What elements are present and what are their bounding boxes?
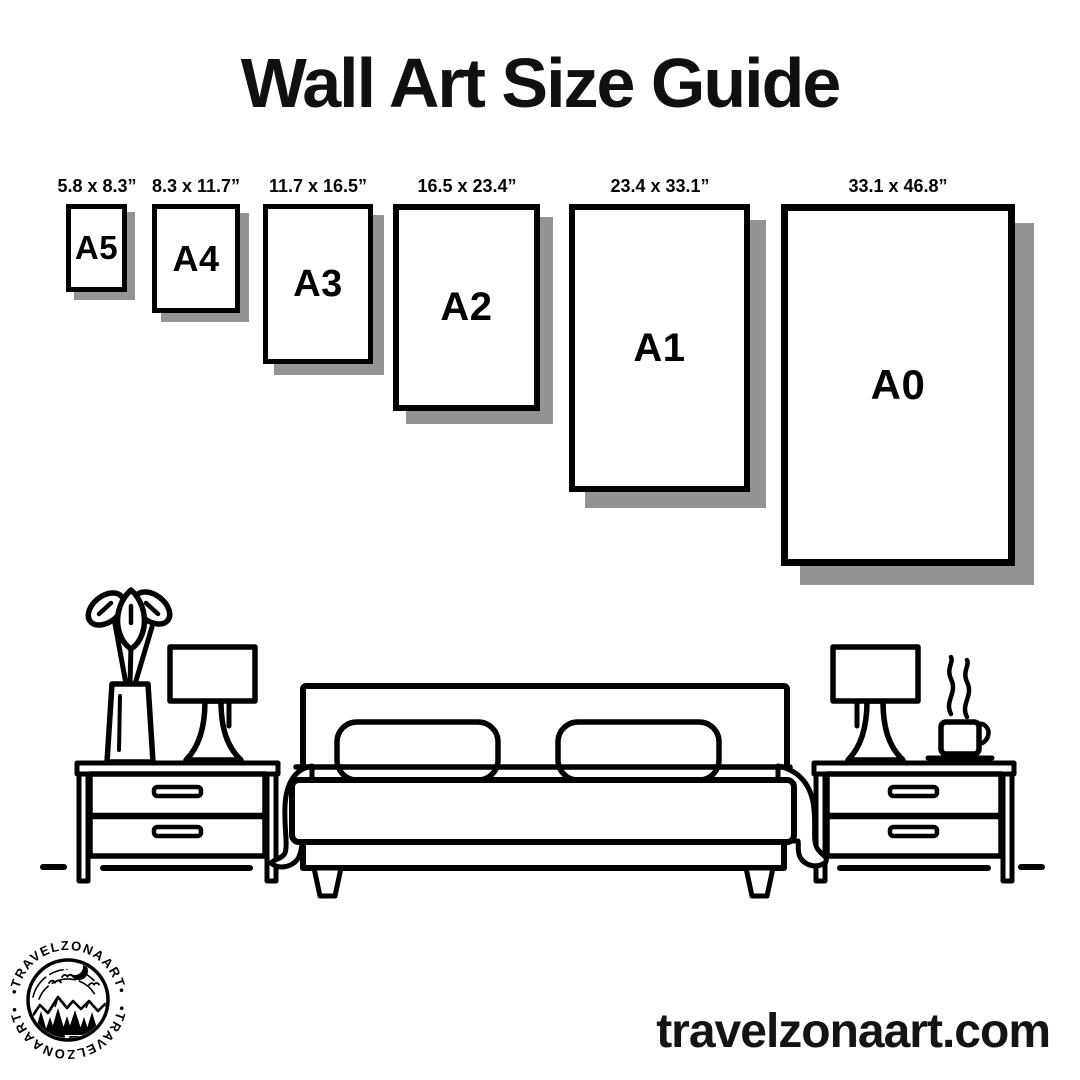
size-code-a4: A4 bbox=[172, 238, 219, 280]
website-url: travelzonaart.com bbox=[656, 1004, 1050, 1059]
size-code-a1: A1 bbox=[633, 326, 685, 371]
pillow-right bbox=[558, 722, 719, 780]
size-dimensions-a4: 8.3 x 11.7” bbox=[152, 176, 240, 197]
size-card-a1: A1 bbox=[569, 204, 750, 492]
pillow-left bbox=[337, 722, 498, 780]
bed-icon bbox=[271, 686, 826, 896]
wall-art-size-guide: Wall Art Size Guide 5.8 x 8.3” 8.3 x 11.… bbox=[0, 0, 1080, 1080]
size-card-a5: A5 bbox=[66, 204, 127, 292]
bedroom-illustration bbox=[30, 585, 1050, 910]
size-code-a2: A2 bbox=[440, 285, 492, 330]
left-table-lamp-icon bbox=[170, 647, 255, 760]
potted-plant-icon bbox=[82, 585, 176, 762]
size-code-a0: A0 bbox=[871, 361, 926, 409]
size-code-a3: A3 bbox=[293, 263, 343, 306]
brand-logo: •TRAVELZONAART• •TRAVELZONAART• bbox=[5, 937, 131, 1063]
right-table-lamp-icon bbox=[833, 647, 918, 760]
mattress bbox=[292, 780, 794, 842]
size-dimensions-a0: 33.1 x 46.8” bbox=[848, 176, 947, 197]
right-nightstand-icon bbox=[814, 763, 1014, 881]
size-dimensions-a1: 23.4 x 33.1” bbox=[610, 176, 709, 197]
size-card-a4: A4 bbox=[152, 204, 240, 313]
size-dimensions-a3: 11.7 x 16.5” bbox=[269, 176, 367, 197]
size-card-a3: A3 bbox=[263, 204, 373, 364]
left-nightstand-icon bbox=[77, 763, 278, 881]
size-dimensions-a2: 16.5 x 23.4” bbox=[417, 176, 516, 197]
size-dimensions-a5: 5.8 x 8.3” bbox=[57, 176, 136, 197]
coffee-cup-icon bbox=[928, 657, 992, 758]
page-title: Wall Art Size Guide bbox=[0, 48, 1080, 118]
size-card-a0: A0 bbox=[781, 204, 1015, 566]
size-card-a2: A2 bbox=[393, 204, 540, 411]
size-code-a5: A5 bbox=[75, 229, 118, 267]
